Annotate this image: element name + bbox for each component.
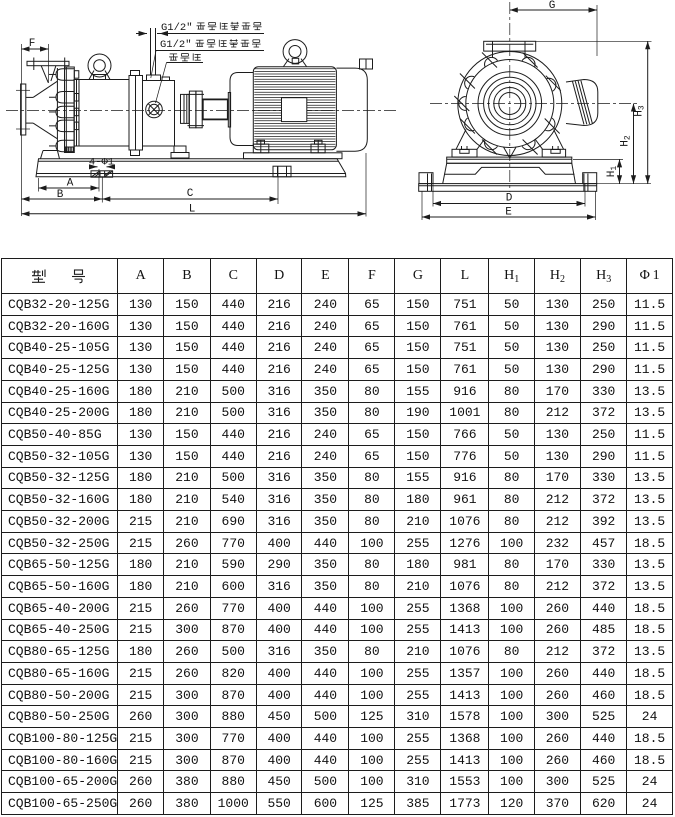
svg-text:A: A (67, 177, 74, 189)
svg-text:C: C (187, 188, 194, 200)
svg-text:H3: H3 (634, 105, 647, 117)
svg-text:B: B (57, 189, 64, 201)
svg-text:F: F (29, 38, 36, 50)
svg-text:H2: H2 (620, 135, 633, 147)
svg-text:E: E (505, 207, 512, 219)
svg-text:H1: H1 (606, 166, 619, 178)
svg-text:G: G (549, 0, 556, 12)
svg-text:L: L (189, 204, 196, 216)
svg-text:G1/2″: G1/2″ (160, 39, 192, 51)
svg-text:G1/2″: G1/2″ (161, 22, 193, 34)
svg-text:D: D (506, 193, 513, 205)
